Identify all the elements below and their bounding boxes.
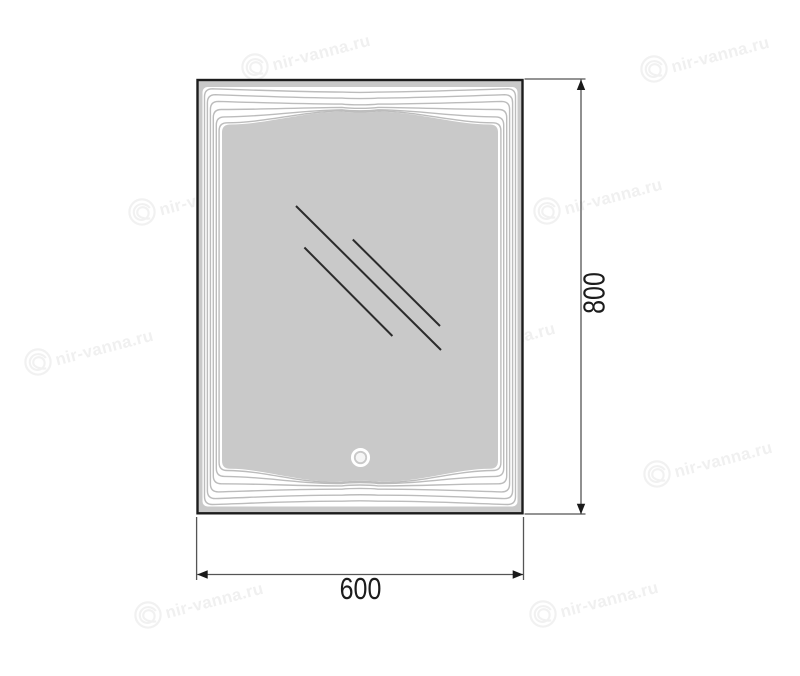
- svg-text:800: 800: [577, 272, 611, 314]
- svg-text:600: 600: [340, 571, 382, 605]
